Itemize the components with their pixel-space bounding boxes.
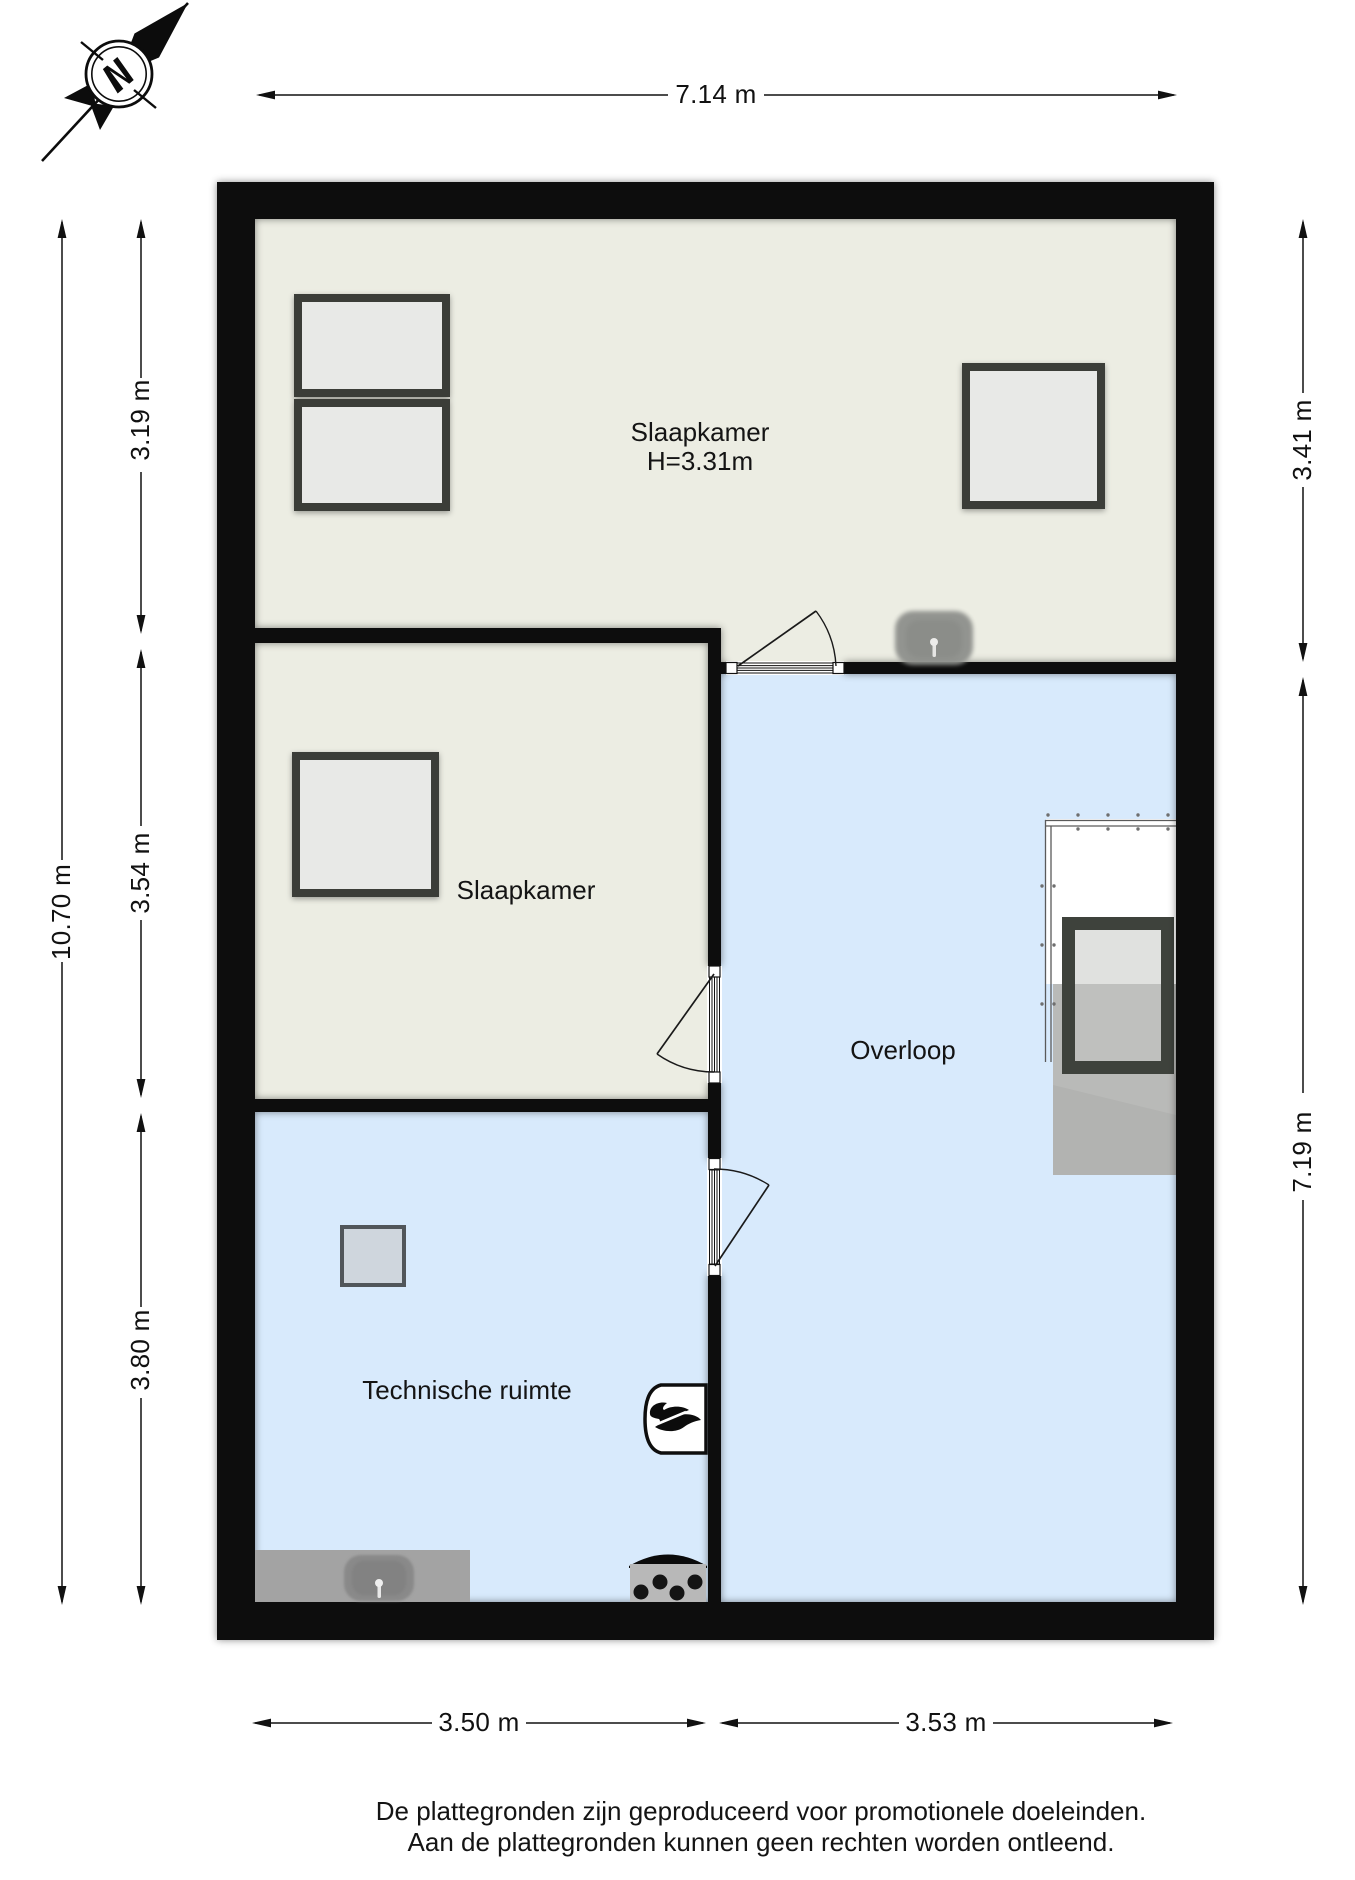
svg-text:7.19 m: 7.19 m <box>1287 1111 1317 1192</box>
svg-text:De plattegronden zijn geproduc: De plattegronden zijn geproduceerd voor … <box>376 1796 1146 1826</box>
svg-text:3.19 m: 3.19 m <box>125 379 155 460</box>
svg-text:Overloop: Overloop <box>850 1035 956 1065</box>
svg-text:3.54 m: 3.54 m <box>125 832 155 913</box>
svg-text:Aan de plattegronden kunnen ge: Aan de plattegronden kunnen geen rechten… <box>408 1827 1115 1857</box>
svg-text:3.41 m: 3.41 m <box>1287 399 1317 480</box>
svg-text:7.14 m: 7.14 m <box>675 79 756 109</box>
svg-text:Slaapkamer: Slaapkamer <box>457 875 596 905</box>
svg-text:3.80 m: 3.80 m <box>125 1309 155 1390</box>
svg-text:Technische ruimte: Technische ruimte <box>362 1375 572 1405</box>
svg-text:10.70 m: 10.70 m <box>46 864 76 960</box>
svg-text:3.53 m: 3.53 m <box>905 1707 986 1737</box>
svg-text:3.50 m: 3.50 m <box>438 1707 519 1737</box>
svg-text:H=3.31m: H=3.31m <box>647 446 753 476</box>
svg-text:Slaapkamer: Slaapkamer <box>631 417 770 447</box>
